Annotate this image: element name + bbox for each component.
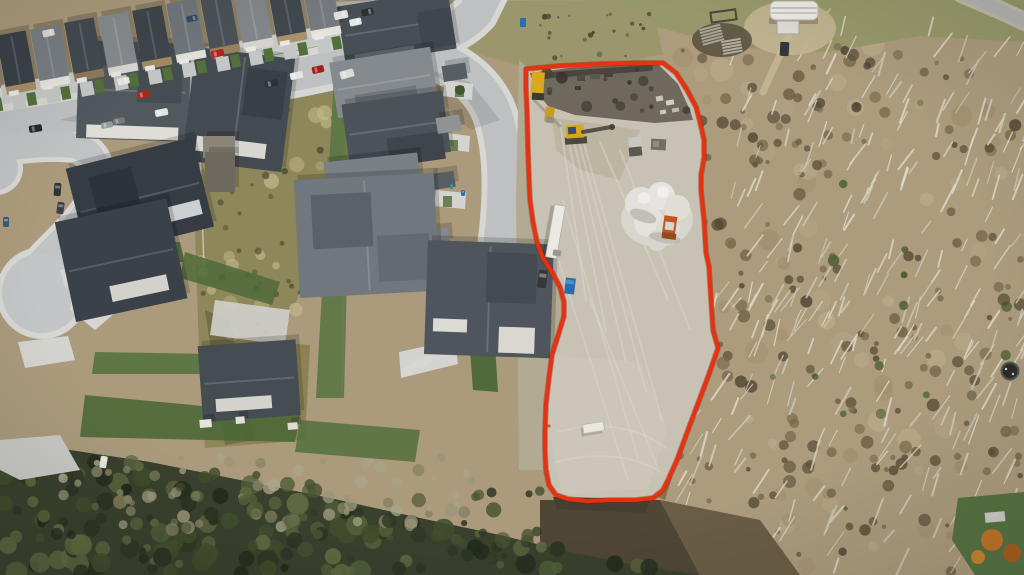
photo-vignette: [0, 0, 1024, 575]
aerial-photo: [0, 0, 1024, 575]
aerial-photo-canvas: [0, 0, 1024, 575]
foreground-layer: [0, 0, 1024, 575]
